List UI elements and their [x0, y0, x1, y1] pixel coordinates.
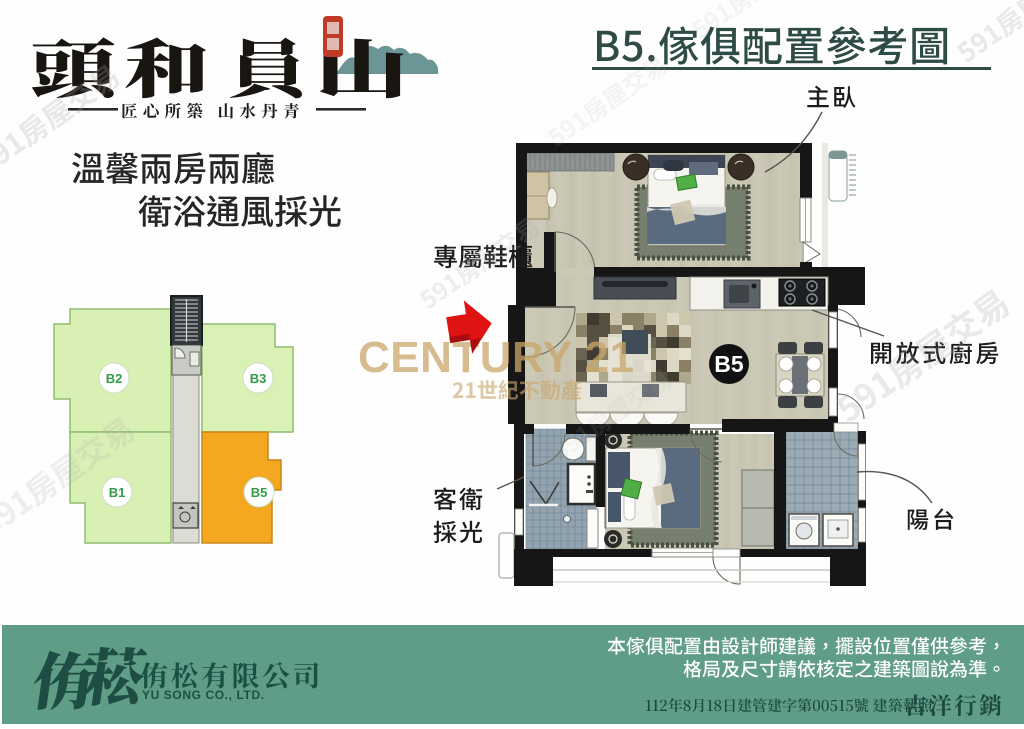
- svg-text:B1: B1: [109, 485, 126, 500]
- svg-text:CENTURY 21: CENTURY 21: [358, 333, 634, 382]
- svg-text:B3: B3: [250, 371, 267, 386]
- svg-text:B2: B2: [106, 371, 123, 386]
- svg-text:B5: B5: [251, 485, 268, 500]
- svg-text:YU SONG CO., LTD.: YU SONG CO., LTD.: [142, 688, 265, 702]
- svg-text:B5: B5: [714, 351, 744, 377]
